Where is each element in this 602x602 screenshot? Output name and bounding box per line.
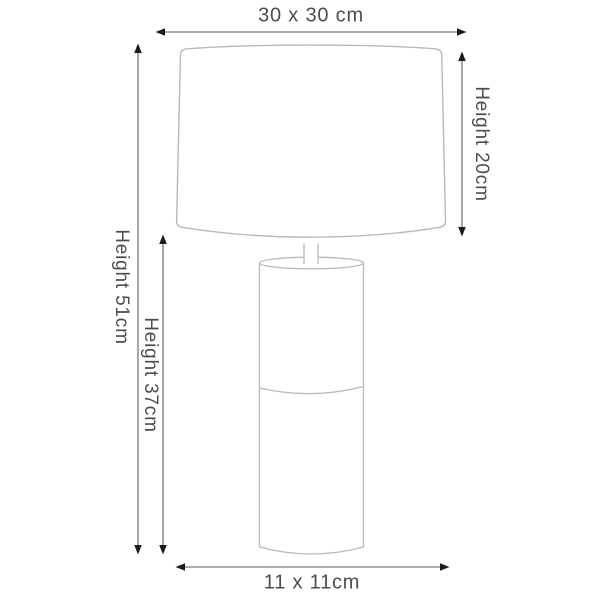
total-height-label: Height 51cm [110,229,132,344]
lamp-base [260,244,364,555]
arrowhead-bottom [458,227,466,237]
base-seam [260,387,364,394]
arrowhead-right [440,563,450,571]
shade-height-label: Height 20cm [470,86,492,201]
dimension-line-base-width [176,563,450,571]
dimension-line-total-height [134,44,142,555]
lamp-dimension-diagram: 30 x 30 cm Height 20cm Height 51cm Heigh… [0,0,602,602]
arrowhead-right [457,28,467,36]
arrowhead-left [156,28,166,36]
lamp-neck [304,244,318,265]
arrowhead-bottom [159,545,167,555]
arrowhead-top [458,52,466,62]
base-width-label: 11 x 11cm [264,572,361,595]
lamp-shade-outline [177,45,446,237]
arrowhead-bottom [134,545,142,555]
arrowhead-left [176,563,186,571]
arrowhead-top [134,44,142,54]
shade-width-label: 30 x 30 cm [258,5,364,28]
arrowhead-top [159,235,167,245]
dimension-line-shade-width [156,28,467,36]
base-height-label: Height 37cm [139,317,161,432]
diagram-line-art [0,0,602,602]
dimension-line-shade-height [458,52,466,237]
base-bottom-edge [260,547,364,554]
